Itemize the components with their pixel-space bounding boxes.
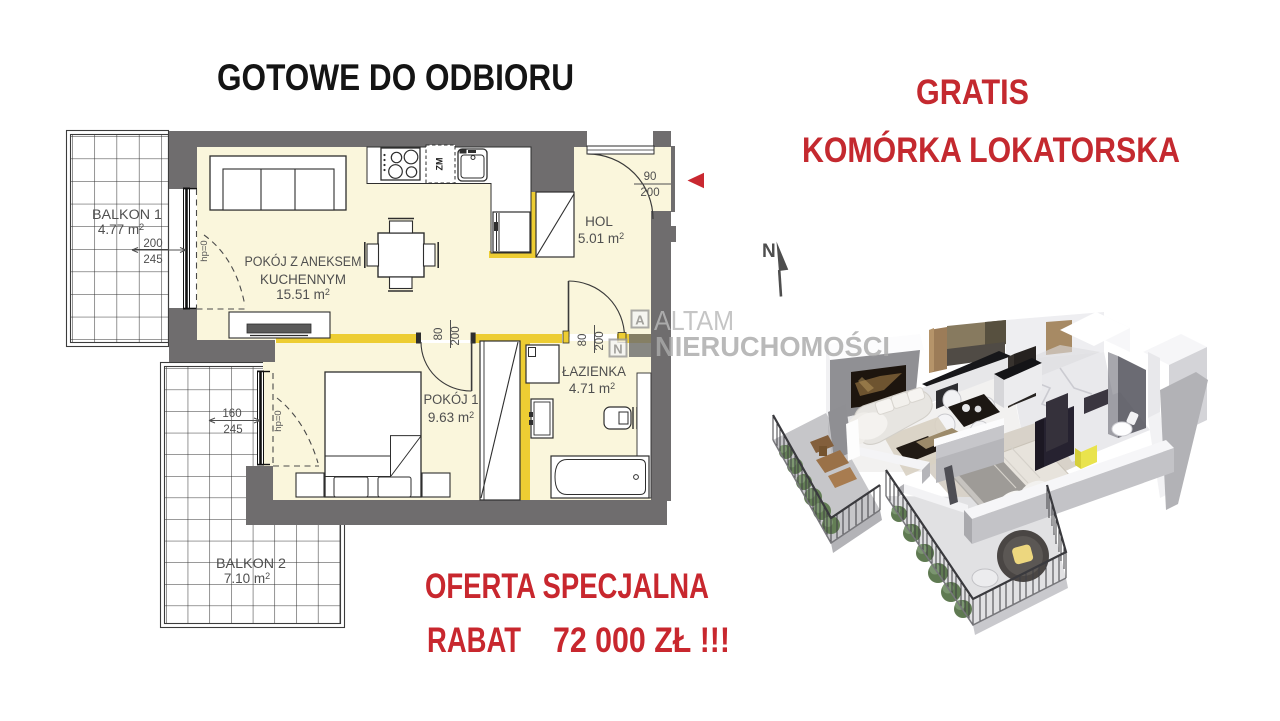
svg-text:80: 80 bbox=[577, 334, 589, 347]
svg-text:KOMÓRKA LOKATORSKA: KOMÓRKA LOKATORSKA bbox=[802, 130, 1180, 170]
svg-text:ZM: ZM bbox=[434, 158, 444, 171]
svg-text:KUCHENNYM: KUCHENNYM bbox=[260, 272, 346, 287]
svg-text:POKÓJ 1: POKÓJ 1 bbox=[424, 392, 479, 407]
svg-text:NIERUCHOMOŚCI: NIERUCHOMOŚCI bbox=[655, 331, 890, 362]
svg-text:9.63 m2: 9.63 m2 bbox=[428, 410, 474, 425]
svg-text:200: 200 bbox=[594, 331, 606, 350]
svg-text:OFERTA SPECJALNA: OFERTA SPECJALNA bbox=[425, 567, 709, 606]
svg-text:90: 90 bbox=[644, 171, 657, 183]
svg-text:5.01 m2: 5.01 m2 bbox=[578, 231, 624, 246]
svg-text:245: 245 bbox=[223, 424, 242, 436]
svg-text:BALKON 2: BALKON 2 bbox=[216, 556, 286, 571]
svg-text:hp=0: hp=0 bbox=[273, 410, 284, 431]
svg-text:200: 200 bbox=[143, 238, 162, 250]
svg-text:15.51 m2: 15.51 m2 bbox=[276, 287, 330, 302]
svg-text:BALKON 1: BALKON 1 bbox=[92, 207, 162, 222]
svg-text:160: 160 bbox=[222, 408, 241, 420]
svg-text:200: 200 bbox=[640, 187, 659, 199]
svg-text:245: 245 bbox=[143, 254, 162, 266]
svg-text:HOL: HOL bbox=[585, 214, 613, 229]
svg-text:hp=0: hp=0 bbox=[199, 240, 210, 261]
svg-text:7.10 m2: 7.10 m2 bbox=[224, 571, 270, 586]
svg-text:GOTOWE DO ODBIORU: GOTOWE DO ODBIORU bbox=[217, 57, 574, 98]
svg-text:N: N bbox=[762, 241, 776, 262]
svg-text:RABAT: RABAT bbox=[427, 621, 521, 660]
svg-text:GRATIS: GRATIS bbox=[916, 73, 1029, 112]
svg-text:A: A bbox=[635, 313, 645, 328]
svg-text:72 000 ZŁ !!!: 72 000 ZŁ !!! bbox=[553, 621, 730, 660]
svg-text:4.71 m2: 4.71 m2 bbox=[569, 381, 615, 396]
svg-text:ŁAZIENKA: ŁAZIENKA bbox=[562, 364, 626, 379]
svg-text:POKÓJ Z ANEKSEM: POKÓJ Z ANEKSEM bbox=[245, 254, 362, 269]
svg-text:N: N bbox=[613, 342, 622, 357]
svg-text:4.77 m2: 4.77 m2 bbox=[98, 222, 144, 237]
svg-text:200: 200 bbox=[450, 326, 462, 345]
svg-text:80: 80 bbox=[433, 328, 445, 341]
